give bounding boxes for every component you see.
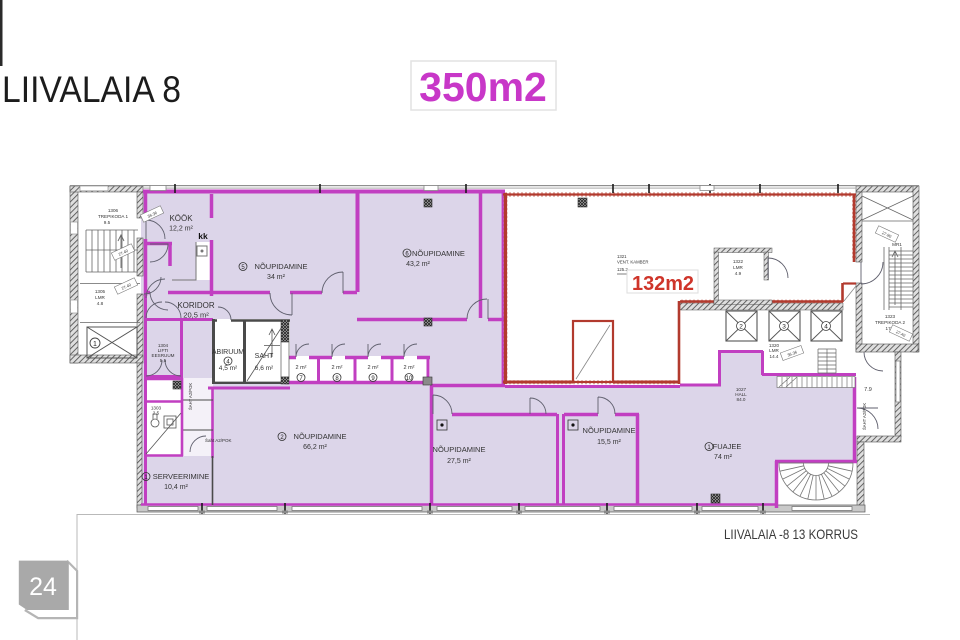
svg-text:2 m²: 2 m² [368,365,379,371]
svg-text:LMR: LMR [95,295,105,300]
svg-text:132m2: 132m2 [632,273,694,295]
svg-text:27,5 m²: 27,5 m² [447,458,471,465]
svg-text:15,5 m²: 15,5 m² [597,439,621,446]
svg-text:Šaht A2/POK: Šaht A2/POK [205,437,232,443]
svg-text:7.9: 7.9 [864,387,872,393]
svg-text:2: 2 [739,324,743,331]
svg-text:1: 1 [93,341,97,348]
svg-text:SERVEERIMINE: SERVEERIMINE [153,472,210,481]
svg-text:LMR: LMR [769,348,779,353]
svg-text:4.9: 4.9 [735,271,742,276]
svg-text:6,6 m²: 6,6 m² [255,365,274,372]
svg-text:MR1: MR1 [892,242,902,247]
svg-text:SAHT: SAHT [255,353,274,360]
svg-text:24: 24 [29,573,57,601]
svg-text:9.5: 9.5 [104,220,111,225]
svg-text:kk: kk [198,231,208,241]
svg-text:5,5: 5,5 [160,358,167,363]
svg-text:LIIVALAIA -8 13 KORRUS: LIIVALAIA -8 13 KORRUS [724,526,858,542]
svg-text:1323: 1323 [885,314,896,319]
svg-text:74 m²: 74 m² [714,454,733,461]
svg-text:FUAJEE: FUAJEE [713,442,742,451]
svg-text:TREPIKODA 2: TREPIKODA 2 [875,320,906,325]
svg-text:20,5 m²: 20,5 m² [183,311,209,320]
svg-text:NÕUPIDAMINE: NÕUPIDAMINE [294,432,347,441]
svg-text:1322: 1322 [733,259,744,264]
svg-text:66,2 m²: 66,2 m² [303,444,327,451]
svg-text:ŠAHT A2/POK: ŠAHT A2/POK [862,403,867,430]
svg-text:84.0: 84.0 [737,397,746,402]
svg-text:3: 3 [782,324,786,331]
svg-text:KÖÖK: KÖÖK [169,214,193,223]
svg-text:NÕUPIDAMINE: NÕUPIDAMINE [583,426,636,435]
svg-text:10,4 m²: 10,4 m² [164,484,188,491]
svg-text:1306: 1306 [108,208,119,213]
svg-text:ŠAHT A2/POK: ŠAHT A2/POK [188,383,193,410]
svg-text:34 m²: 34 m² [267,274,286,281]
svg-text:NÕUPIDAMINE: NÕUPIDAMINE [412,249,465,258]
svg-text:1305: 1305 [95,289,106,294]
svg-text:350m2: 350m2 [419,64,547,110]
svg-text:LMR: LMR [733,265,743,270]
svg-text:NÕUPIDAMINE: NÕUPIDAMINE [255,262,308,271]
svg-text:2 m²: 2 m² [296,365,307,371]
svg-text:VENT. KAMBER: VENT. KAMBER [617,260,649,265]
svg-text:ABIRUUM: ABIRUUM [212,349,244,356]
svg-text:2 m²: 2 m² [404,365,415,371]
svg-text:10: 10 [406,376,413,382]
svg-text:14.4: 14.4 [770,354,779,359]
svg-text:1321: 1321 [617,254,627,259]
svg-text:4,5 m²: 4,5 m² [219,365,238,372]
svg-text:43,2 m²: 43,2 m² [406,261,430,268]
svg-text:12,2 m²: 12,2 m² [169,226,193,233]
svg-text:4.8: 4.8 [97,301,104,306]
svg-text:KORIDOR: KORIDOR [177,301,215,310]
svg-text:2,5: 2,5 [153,411,160,416]
svg-text:NÕUPIDAMINE: NÕUPIDAMINE [433,445,486,454]
svg-text:LIIVALAIA 8: LIIVALAIA 8 [2,69,181,110]
svg-text:4: 4 [824,324,828,331]
svg-text:2 m²: 2 m² [332,365,343,371]
svg-text:TREPIKODA 1: TREPIKODA 1 [98,214,129,219]
